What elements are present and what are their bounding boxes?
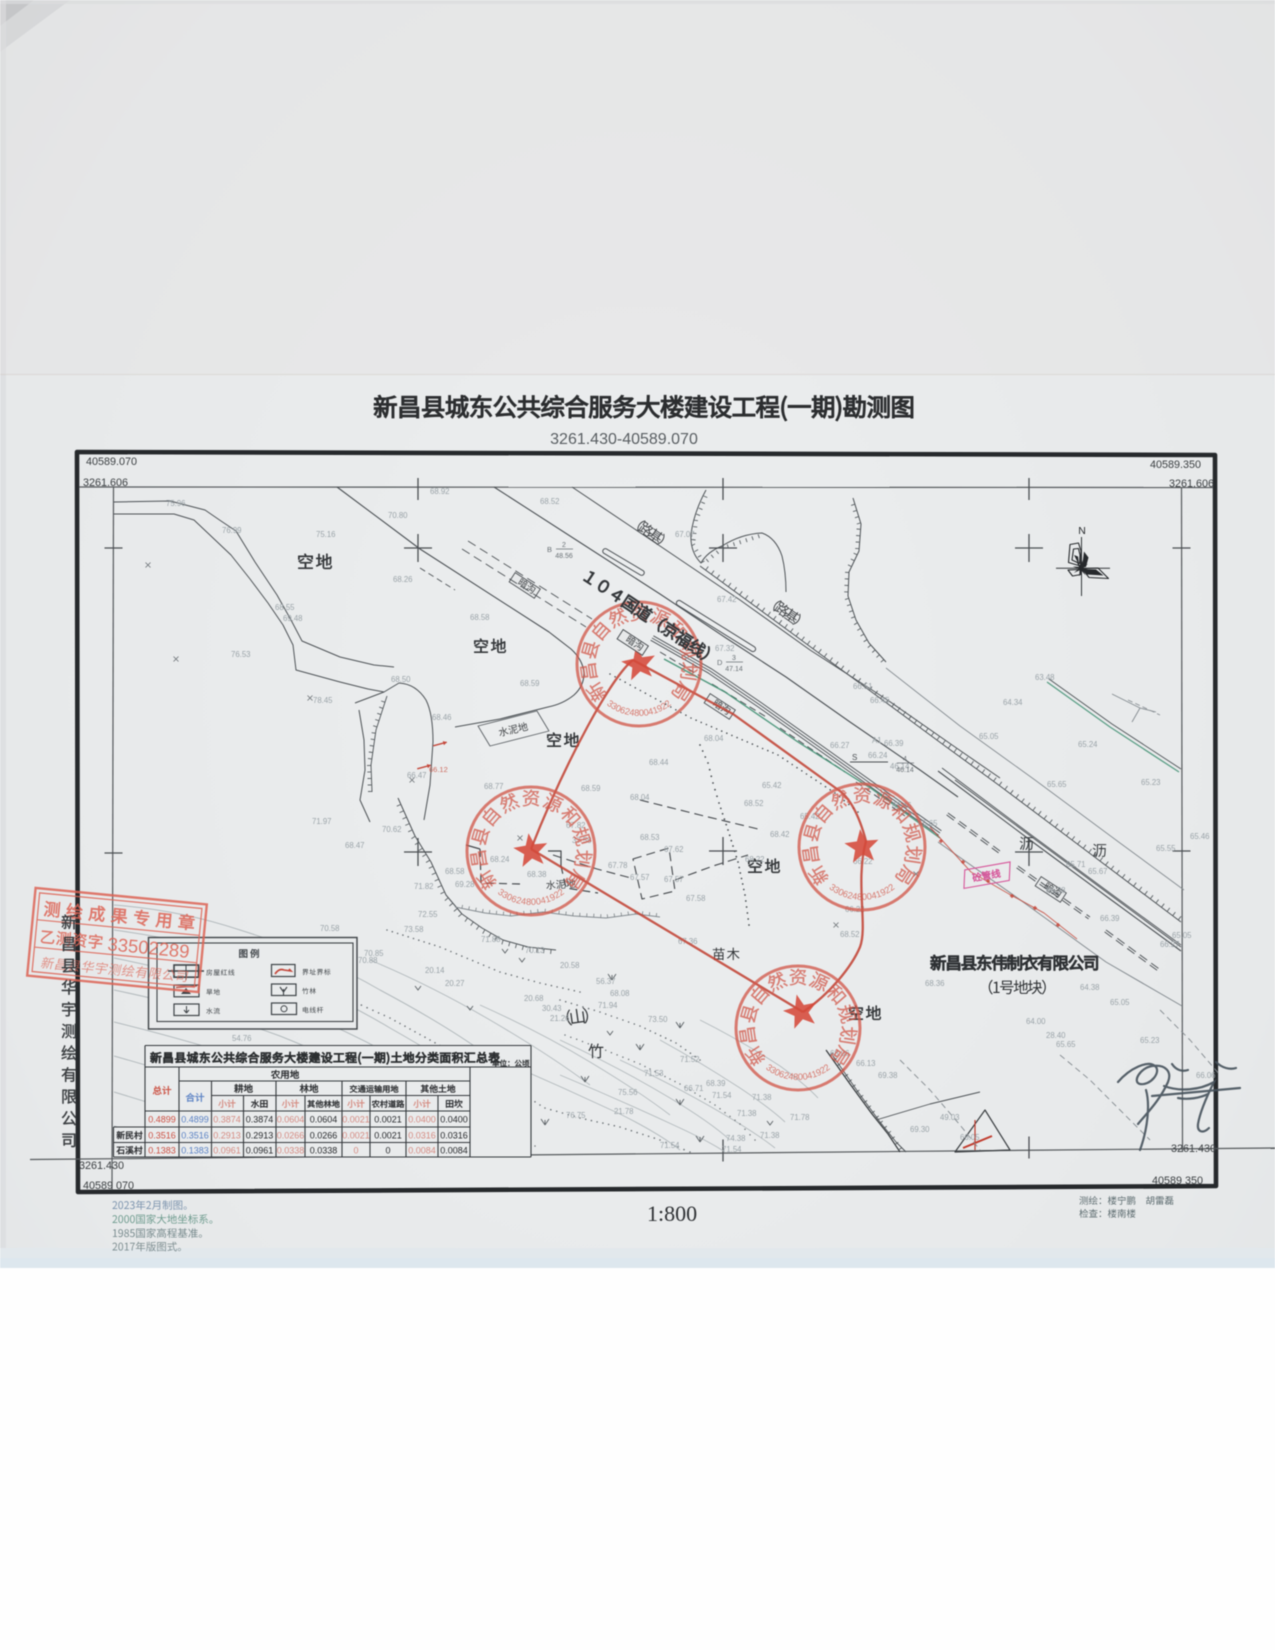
svg-text:71.54: 71.54 — [722, 1145, 742, 1154]
svg-text:68.22: 68.22 — [745, 855, 765, 864]
svg-text:68.04: 68.04 — [630, 793, 650, 802]
svg-text:70.58: 70.58 — [320, 924, 340, 933]
svg-text:0.0084: 0.0084 — [408, 1146, 436, 1156]
svg-text:71.97: 71.97 — [312, 817, 332, 826]
svg-text:0.0338: 0.0338 — [310, 1146, 338, 1156]
svg-text:0.0400: 0.0400 — [440, 1115, 468, 1125]
svg-text:66.38: 66.38 — [1046, 886, 1066, 895]
svg-text:67.42: 67.42 — [717, 595, 737, 604]
svg-text:76.75: 76.75 — [566, 1111, 586, 1120]
svg-text:70.80: 70.80 — [388, 511, 408, 520]
svg-text:65.24: 65.24 — [1078, 740, 1098, 749]
svg-text:68.52: 68.52 — [840, 930, 860, 939]
svg-text:21.78: 21.78 — [614, 1107, 634, 1116]
svg-text:0.3516: 0.3516 — [181, 1131, 209, 1141]
svg-text:68.26: 68.26 — [393, 575, 413, 584]
svg-text:47.14: 47.14 — [725, 666, 743, 673]
svg-text:49.03: 49.03 — [940, 1113, 960, 1122]
svg-text:73.50: 73.50 — [648, 1015, 668, 1024]
svg-text:69.38: 69.38 — [878, 1071, 898, 1080]
svg-text:66.51: 66.51 — [853, 682, 873, 691]
svg-text:66.27: 66.27 — [830, 741, 850, 750]
svg-text:71.53: 71.53 — [644, 1069, 664, 1078]
svg-text:67.07: 67.07 — [675, 530, 695, 539]
svg-text:54.76: 54.76 — [232, 1034, 252, 1043]
svg-text:71.78: 71.78 — [790, 1113, 810, 1122]
svg-text:3261.430: 3261.430 — [1171, 1143, 1216, 1155]
svg-text:0.3874: 0.3874 — [213, 1115, 241, 1125]
svg-text:20.14: 20.14 — [425, 966, 445, 975]
svg-text:76.99: 76.99 — [222, 526, 242, 535]
svg-text:30.43: 30.43 — [542, 1004, 562, 1013]
svg-text:3261.606: 3261.606 — [1169, 478, 1214, 490]
svg-text:0.0400: 0.0400 — [408, 1115, 436, 1125]
svg-text:71.38: 71.38 — [760, 1131, 780, 1140]
svg-text:65.05: 65.05 — [1110, 998, 1130, 1007]
svg-text:70.88: 70.88 — [358, 956, 378, 965]
svg-text:67.62: 67.62 — [664, 845, 684, 854]
svg-text:66.39: 66.39 — [1100, 914, 1120, 923]
svg-text:0.0961: 0.0961 — [213, 1146, 241, 1156]
svg-text:66.13: 66.13 — [856, 1059, 876, 1068]
svg-text:0.1383: 0.1383 — [181, 1146, 209, 1156]
svg-text:66.05: 66.05 — [960, 1133, 980, 1142]
svg-text:40589 070: 40589 070 — [83, 1180, 134, 1192]
svg-text:0.0316: 0.0316 — [408, 1131, 436, 1141]
svg-text:68.59: 68.59 — [581, 784, 601, 793]
svg-text:40589 350: 40589 350 — [1152, 1175, 1203, 1187]
svg-text:68.58: 68.58 — [445, 867, 465, 876]
svg-text:68.42: 68.42 — [770, 830, 790, 839]
svg-text:S: S — [852, 753, 857, 762]
svg-text:70.13: 70.13 — [525, 946, 545, 955]
svg-text:0.2913: 0.2913 — [246, 1131, 274, 1141]
svg-text:0.0316: 0.0316 — [440, 1131, 468, 1141]
svg-text:56.37: 56.37 — [596, 977, 616, 986]
svg-text:64.38: 64.38 — [1080, 983, 1100, 992]
svg-text:66.27: 66.27 — [1160, 940, 1180, 949]
svg-text:2: 2 — [562, 542, 566, 549]
svg-text:71.88: 71.88 — [481, 935, 501, 944]
svg-text:68.47: 68.47 — [345, 841, 365, 850]
svg-text:68.36: 68.36 — [925, 979, 945, 988]
svg-text:68.52: 68.52 — [744, 799, 764, 808]
svg-text:69.48: 69.48 — [283, 614, 303, 623]
svg-text:B: B — [547, 545, 552, 554]
svg-text:0.0338: 0.0338 — [277, 1146, 305, 1156]
svg-text:4: 4 — [903, 756, 907, 763]
svg-text:66.24: 66.24 — [868, 751, 888, 760]
svg-text:46.14: 46.14 — [896, 767, 914, 774]
svg-text:64.00: 64.00 — [1026, 1017, 1046, 1026]
svg-text:67.58: 67.58 — [686, 894, 706, 903]
svg-text:68.59: 68.59 — [520, 679, 540, 688]
svg-text:66.47: 66.47 — [407, 771, 427, 780]
svg-text:67.32: 67.32 — [715, 644, 735, 653]
svg-text:68.92: 68.92 — [430, 487, 450, 496]
svg-text:63.48: 63.48 — [1035, 673, 1055, 682]
svg-text:65.42: 65.42 — [762, 781, 782, 790]
svg-text:0.0084: 0.0084 — [440, 1146, 468, 1156]
svg-text:3261.606: 3261.606 — [83, 477, 128, 489]
svg-text:67.57: 67.57 — [630, 873, 650, 882]
svg-text:0: 0 — [353, 1146, 358, 1156]
svg-text:66.71: 66.71 — [684, 1084, 704, 1093]
svg-text:68.53: 68.53 — [640, 833, 660, 842]
svg-text:3: 3 — [732, 655, 736, 662]
svg-text:65.23: 65.23 — [1140, 1036, 1160, 1045]
svg-text:0.0604: 0.0604 — [277, 1115, 305, 1125]
svg-text:76.53: 76.53 — [231, 650, 251, 659]
svg-text:75.96: 75.96 — [166, 499, 186, 508]
svg-text:0.3516: 0.3516 — [148, 1131, 176, 1141]
svg-text:0.2913: 0.2913 — [213, 1131, 241, 1141]
svg-text:0.0961: 0.0961 — [246, 1146, 274, 1156]
svg-text:75.56: 75.56 — [618, 1088, 638, 1097]
svg-text:65.05: 65.05 — [979, 732, 999, 741]
svg-text:72.55: 72.55 — [418, 910, 438, 919]
svg-text:20.27: 20.27 — [445, 979, 465, 988]
svg-text:68.55: 68.55 — [275, 603, 295, 612]
svg-text:74.38: 74.38 — [726, 1134, 746, 1143]
svg-text:0.0021: 0.0021 — [374, 1115, 402, 1125]
svg-text:A1: A1 — [872, 736, 882, 745]
svg-text:0.0266: 0.0266 — [277, 1131, 305, 1141]
svg-text:D: D — [717, 658, 723, 667]
svg-text:71.38: 71.38 — [737, 1109, 757, 1118]
svg-text:0.0021: 0.0021 — [342, 1115, 370, 1125]
svg-text:65.05: 65.05 — [1172, 931, 1192, 940]
svg-text:70.62: 70.62 — [382, 825, 402, 834]
svg-text:71.54: 71.54 — [712, 1091, 732, 1100]
svg-text:69.30: 69.30 — [910, 1125, 930, 1134]
svg-text:66.06: 66.06 — [1196, 1071, 1216, 1080]
svg-text:71.94: 71.94 — [598, 1001, 618, 1010]
svg-text:68.39: 68.39 — [706, 1079, 726, 1088]
svg-text:67.57: 67.57 — [664, 875, 684, 884]
svg-text:66.39: 66.39 — [884, 739, 904, 748]
svg-text:3261.430: 3261.430 — [79, 1160, 124, 1172]
svg-text:66.45: 66.45 — [870, 696, 890, 705]
svg-text:0.3874: 0.3874 — [246, 1115, 274, 1125]
svg-text:40589.350: 40589.350 — [1150, 459, 1201, 471]
svg-text:71.38: 71.38 — [752, 1093, 772, 1102]
svg-text:68.24: 68.24 — [490, 855, 510, 864]
svg-text:71.82: 71.82 — [414, 882, 434, 891]
svg-text:65.65: 65.65 — [1056, 1040, 1076, 1049]
svg-text:68.04: 68.04 — [704, 734, 724, 743]
svg-text:65.55: 65.55 — [1156, 844, 1176, 853]
svg-text:68.50: 68.50 — [391, 675, 411, 684]
svg-text:65.23: 65.23 — [1141, 778, 1161, 787]
svg-text:67.78: 67.78 — [608, 861, 628, 870]
svg-text:65.46: 65.46 — [1190, 832, 1210, 841]
svg-text:0.0021: 0.0021 — [342, 1131, 370, 1141]
svg-text:20.68: 20.68 — [524, 994, 544, 1003]
svg-text:75.16: 75.16 — [316, 530, 336, 539]
svg-text:68.46: 68.46 — [432, 713, 452, 722]
svg-text:0.4899: 0.4899 — [148, 1115, 176, 1125]
svg-text:0.0021: 0.0021 — [374, 1131, 402, 1141]
svg-text:40589.070: 40589.070 — [86, 456, 137, 468]
svg-text:65.71: 65.71 — [1066, 860, 1086, 869]
svg-text:20.58: 20.58 — [560, 961, 580, 970]
svg-text:48.56: 48.56 — [555, 553, 573, 560]
svg-text:78.45: 78.45 — [313, 696, 333, 705]
svg-text:68.08: 68.08 — [610, 989, 630, 998]
svg-text:69.28: 69.28 — [455, 880, 475, 889]
svg-text:1:800: 1:800 — [647, 1201, 697, 1226]
svg-text:0: 0 — [385, 1146, 390, 1156]
svg-text:0.4899: 0.4899 — [181, 1115, 209, 1125]
svg-text:73.58: 73.58 — [404, 925, 424, 934]
svg-text:28.40: 28.40 — [1046, 1031, 1066, 1040]
svg-text:65.67: 65.67 — [1088, 867, 1108, 876]
svg-text:0.0604: 0.0604 — [310, 1115, 338, 1125]
svg-text:71.54: 71.54 — [660, 1141, 680, 1150]
svg-text:68.44: 68.44 — [649, 758, 669, 767]
svg-text:0.0266: 0.0266 — [310, 1131, 338, 1141]
svg-text:71.52: 71.52 — [680, 1055, 700, 1064]
svg-text:68.38: 68.38 — [527, 870, 547, 879]
svg-text:N: N — [1078, 525, 1086, 537]
svg-text:66.12: 66.12 — [429, 765, 448, 774]
svg-text:68.58: 68.58 — [470, 613, 490, 622]
svg-text:21.26: 21.26 — [550, 1014, 570, 1023]
svg-text:65.65: 65.65 — [1047, 780, 1067, 789]
svg-text:0.1383: 0.1383 — [148, 1146, 176, 1156]
svg-text:3261.430-40589.070: 3261.430-40589.070 — [550, 431, 698, 448]
svg-text:68.77: 68.77 — [484, 782, 504, 791]
svg-text:68.52: 68.52 — [540, 497, 560, 506]
svg-text:64.34: 64.34 — [1003, 698, 1023, 707]
